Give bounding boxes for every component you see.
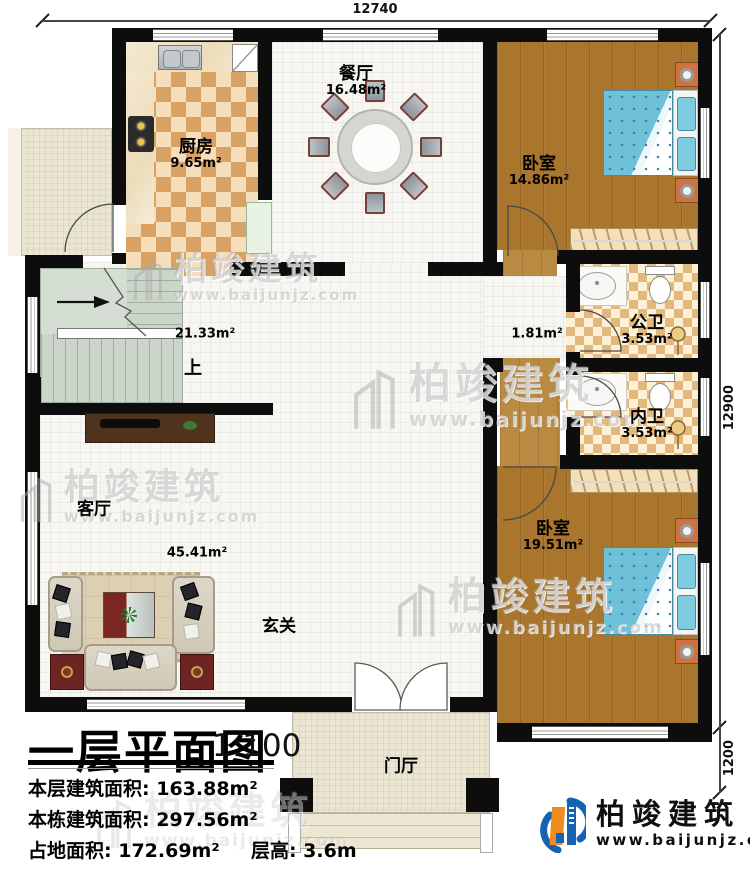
dining-chair [308, 137, 330, 157]
dining-chair [365, 192, 385, 214]
stair-rail [57, 328, 182, 339]
sofa-pillow [54, 621, 71, 638]
stat-floor-area: 本层建筑面积: 163.88m² [28, 774, 258, 801]
label-living: 客厅 [77, 500, 111, 519]
porch-rail-right [480, 813, 493, 853]
label-porch: 门厅 [384, 757, 418, 776]
stat-building-area: 本栋建筑面积: 297.56m² [28, 805, 258, 832]
label-inner-bath: 内卫3.53m² [621, 408, 672, 442]
window-bedroom-bottom-east [700, 563, 710, 655]
coffee-table-plant [121, 607, 137, 623]
logo-url-text: www.baijunjz.com [596, 831, 750, 849]
window-living-west [27, 472, 38, 605]
bed-bottom-headboard [673, 547, 698, 635]
bed-pillow [677, 137, 696, 171]
plan-scale: 1:100 [212, 728, 301, 764]
side-table-lamp [191, 666, 203, 678]
label-hall-area: 21.33m² [175, 328, 235, 343]
tv-plant [183, 421, 197, 430]
bed-pillow [677, 97, 696, 131]
label-bedroom-top: 卧室14.86m² [509, 155, 569, 189]
window-stairs-west [27, 297, 38, 373]
porch-pillar-left [280, 778, 313, 812]
wall-inner-bath-south [560, 455, 712, 469]
dining-table [337, 109, 413, 185]
dining-table-top [351, 123, 401, 173]
sofa-pillow [55, 603, 73, 621]
window-dining [323, 29, 438, 41]
nightstand [675, 62, 699, 87]
wall-bath-divider [566, 358, 712, 372]
bath-sink [578, 378, 616, 406]
bath-sink [578, 272, 616, 300]
window-living-south [87, 699, 245, 710]
label-dining: 餐厅16.48m² [326, 65, 386, 99]
bed-top [603, 90, 673, 176]
bed-bottom [603, 547, 673, 635]
dim-top-value: 12740 [340, 2, 410, 17]
window-public-bath [700, 282, 710, 338]
label-stairs-up: 上 [184, 359, 202, 379]
label-living-area: 45.41m² [167, 547, 227, 562]
stair-treads-upper [127, 269, 182, 334]
dim-right-value: 12900 [722, 385, 737, 430]
sink-basin [163, 50, 181, 68]
sofa-pillow [95, 651, 113, 669]
window-inner-bath [700, 378, 710, 436]
wall-kitchen-dining [258, 28, 272, 200]
nightstand [675, 178, 699, 203]
title-rule-thin [28, 768, 274, 769]
toilet-bowl [649, 276, 671, 304]
logo-brand-text: 柏竣建筑 [596, 799, 750, 831]
dim-line-top [42, 20, 710, 22]
label-corridor-area: 1.81m² [511, 328, 562, 343]
wall-kitchen-west-stub [112, 253, 126, 264]
title-rule [28, 760, 274, 765]
stat-land-area: 占地面积: 172.69m² 层高: 3.6m [28, 836, 357, 863]
bed-top-headboard [673, 90, 698, 176]
patio-floor [8, 128, 112, 256]
nightstand [675, 639, 699, 664]
kitchen-sink [158, 45, 202, 70]
wall-bath-west-lower [566, 417, 580, 455]
window-bedroom-top-east [700, 108, 710, 178]
kitchen-tall-cabinet [246, 202, 272, 254]
floor-plan: 12740 12900 1200 厨房9.65m² 餐厅16.48m² 卧室14… [0, 0, 750, 870]
wall-entry-south [450, 697, 497, 712]
wall-hall-north-a [230, 262, 345, 276]
nightstand [675, 518, 699, 543]
label-entry: 玄关 [262, 617, 296, 636]
wall-hall-bedroom-bottom [483, 362, 497, 697]
toilet-tank [645, 373, 675, 382]
patio-edge [8, 128, 22, 256]
label-kitchen: 厨房9.65m² [170, 138, 221, 172]
bed-pillow [677, 554, 696, 589]
corridor-floor [483, 276, 566, 362]
window-kitchen [153, 29, 233, 41]
bedroom-doorway-floor [503, 250, 557, 276]
window-bedroom-bottom-south [532, 726, 668, 739]
label-bedroom-bottom: 卧室19.51m² [523, 520, 583, 554]
window-bedroom-top [547, 29, 658, 41]
wall-hall-north-b [428, 262, 503, 276]
wall-corridor-stub [483, 358, 503, 372]
tv [100, 419, 160, 428]
toilet-tank [645, 266, 675, 275]
dim-right-lower-value: 1200 [722, 740, 737, 776]
wall-left-corner [25, 255, 83, 268]
kitchen-cabinet [232, 44, 258, 72]
wall-dining-bedroom [483, 28, 497, 262]
wall-bedroom-top-south [557, 250, 712, 264]
wardrobe-bottom [570, 469, 698, 493]
stair-landing [41, 269, 127, 334]
side-table-lamp [61, 666, 73, 678]
stove [128, 116, 154, 152]
bed-pillow [677, 595, 696, 630]
corridor-wood-floor [500, 358, 560, 466]
sink-basin [182, 50, 200, 68]
company-logo: 柏竣建筑 www.baijunjz.com [536, 795, 750, 853]
label-public-bath: 公卫3.53m² [621, 314, 672, 348]
dim-line-right [719, 34, 721, 793]
logo-icon [536, 795, 586, 853]
sofa-pillow [183, 623, 200, 640]
wall-left-notch [25, 377, 41, 403]
dining-chair [420, 137, 442, 157]
sofa-pillow [111, 653, 128, 670]
wall-kitchen-west-upper [112, 28, 126, 205]
wall-bath-west-upper [566, 264, 580, 312]
porch-pillar-right [466, 778, 499, 812]
wardrobe-top [570, 228, 698, 252]
stair-treads-lower [41, 334, 182, 402]
